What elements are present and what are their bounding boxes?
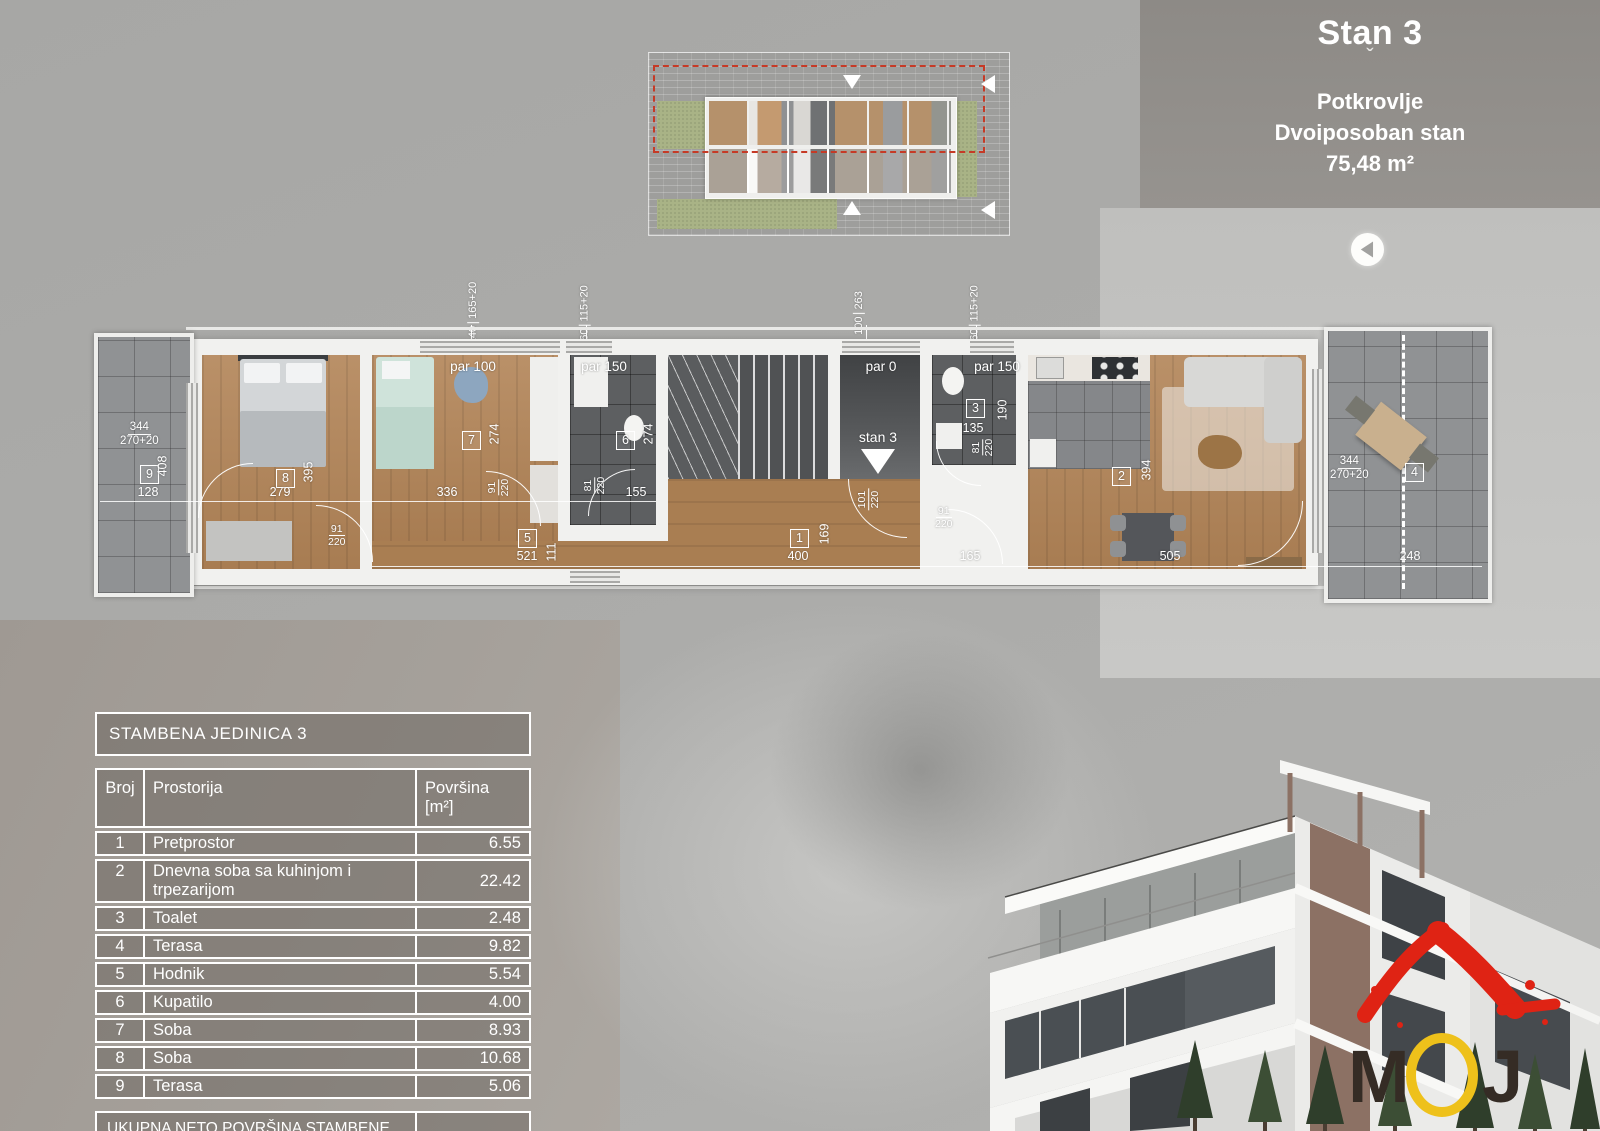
coffee-table: [1198, 435, 1242, 469]
bath-6-door-dim: 81220: [582, 477, 607, 495]
table-row: 4 Terasa 9.82: [95, 934, 531, 959]
roof-edge: [186, 327, 1326, 330]
entry-1-number: 1: [790, 529, 809, 548]
table-row: 1 Pretprostor 6.55: [95, 831, 531, 856]
entrance-arrow-icon: [861, 449, 895, 474]
blanket: [240, 411, 326, 467]
room-7-number: 7: [462, 431, 481, 450]
window-dim-label: 140165+20: [467, 282, 479, 344]
logo-word-dom: DOM: [1360, 1121, 1551, 1131]
chair: [1170, 515, 1186, 531]
sofa-chaise: [1264, 357, 1302, 443]
minimap-lower-unit: [709, 149, 951, 193]
terrace-9-height-dim: 408: [155, 456, 169, 477]
table-row: 3 Toalet 2.48: [95, 906, 531, 931]
terrace-9-width-dim: 128: [118, 485, 178, 499]
living-2-extra-dim: 165: [940, 549, 1000, 563]
pillow: [382, 361, 410, 379]
logo-roof-tail-stroke: [1502, 1004, 1555, 1010]
chair: [1110, 515, 1126, 531]
table-row: 5 Hodnik 5.54: [95, 962, 531, 987]
back-arrow-icon: [1359, 240, 1377, 259]
minimap-highlight-outline: [653, 65, 985, 153]
terrace-4-window-dim: 344270+20: [1330, 455, 1369, 482]
hall-5-height-dim: 111: [545, 542, 559, 561]
table-row: 8 Soba 10.68: [95, 1046, 531, 1071]
room-8-width-dim: 279: [240, 485, 320, 499]
terrace-9-sliding-door: [186, 383, 198, 553]
window: [420, 341, 560, 353]
dresser: [206, 521, 292, 561]
terrace-9-window-dim: 344270+20: [120, 421, 159, 448]
room-7-width-dim: 336: [412, 485, 482, 499]
table-header-row: Broj Prostorija Površina [m²]: [95, 768, 531, 828]
fridge: [1030, 439, 1056, 467]
col-header-broj: Broj: [97, 770, 143, 826]
terrace-4-number: 4: [1405, 463, 1424, 482]
stove: [1092, 357, 1138, 379]
room-7-door-dim: 91220: [486, 479, 511, 497]
page: Stan 3 ˇ Potkrovlje Dvoiposoban stan 75,…: [0, 0, 1600, 1131]
desk: [530, 357, 558, 461]
dimension-line: [372, 566, 1482, 567]
minimap-grass-bottom: [657, 199, 837, 229]
window: [970, 341, 1014, 353]
room-8-door-dim: 91220: [328, 523, 346, 548]
site-minimap: [648, 52, 1010, 236]
floor-label: Potkrovlje: [1140, 87, 1600, 118]
staircase-winders: [668, 355, 738, 479]
bath-6-height-dim: 274: [641, 424, 655, 445]
toilet-3-number: 3: [966, 399, 985, 418]
entry-1-door-dim: 101220: [856, 489, 881, 511]
toilet-bowl: [942, 367, 964, 395]
building-render: M J DOM: [930, 640, 1600, 1131]
terrace-4-sliding-door: [1312, 369, 1324, 553]
col-header-prostorija: Prostorija: [143, 770, 415, 826]
pergola-beam: [1280, 760, 1430, 815]
living-2-number: 2: [1112, 467, 1131, 486]
window-dim-label: 60115+20: [969, 285, 981, 340]
living-2-width-dim: 505: [1130, 549, 1210, 563]
apartment-type-label: Dvoiposoban stan: [1140, 118, 1600, 149]
living-2-height-dim: 394: [1139, 460, 1153, 481]
room-8-height-dim: 395: [301, 462, 315, 483]
entry-1-height-dim: 169: [817, 524, 831, 545]
building-illustration: M J DOM: [930, 640, 1600, 1131]
minimap-arrow-up-icon[interactable]: [843, 201, 861, 215]
entry-1-width-dim: 400: [758, 549, 838, 563]
bath-6-number: 6: [616, 431, 635, 450]
bath-6-extra-dim: 155: [614, 485, 658, 499]
area-table: STAMBENA JEDINICA 3 Broj Prostorija Povr…: [95, 712, 531, 1131]
room-7-parapet-label: par 100: [428, 359, 518, 374]
floor-plan: 140165+20 60115+20 100263 60115+20: [90, 323, 1490, 601]
entrance-label: stan 3: [840, 429, 916, 445]
toilet-3-height-dim: 190: [995, 400, 1009, 421]
back-button[interactable]: [1351, 233, 1384, 266]
logo-letter-j: J: [1482, 1035, 1523, 1118]
entrance-door-opening: [842, 341, 920, 353]
dimension-line: [100, 501, 656, 502]
window-dim-label: 60115+20: [579, 285, 591, 340]
kitchen-sink: [1036, 357, 1064, 379]
chair: [1110, 541, 1126, 557]
title-caret: ˇ: [1140, 53, 1600, 61]
col-header-povrsina: Površina [m²]: [415, 770, 529, 826]
table-row: 7 Soba 8.93: [95, 1018, 531, 1043]
staircase-steps: [738, 355, 828, 479]
pillow: [244, 363, 280, 383]
bath-6-parapet-label: par 150: [564, 359, 644, 374]
toilet-3-width-dim: 135: [950, 421, 996, 435]
pillow: [286, 363, 322, 383]
hall-5-number: 5: [518, 529, 537, 548]
terrace-4-width-dim: 248: [1380, 549, 1440, 563]
minimap-arrow-left-top-icon[interactable]: [981, 75, 995, 93]
total-value: 75.48 m²: [415, 1113, 529, 1131]
window: [570, 571, 620, 583]
landing-parapet-label: par 0: [846, 359, 916, 374]
living-2-door-dim: 91220: [935, 505, 953, 530]
table-row: 9 Terasa 5.06: [95, 1074, 531, 1099]
blanket: [376, 407, 434, 469]
table-footer-row: UKUPNA NETO POVRŠINA STAMBENE JEDINICE 3…: [95, 1111, 531, 1131]
table-row: 2 Dnevna soba sa kuhinjom i trpezarijom …: [95, 859, 531, 903]
toilet-3-parapet-label: par 150: [962, 359, 1032, 374]
roof-edge: [186, 586, 1326, 589]
apartment-header: Stan 3 ˇ Potkrovlje Dvoiposoban stan 75,…: [1140, 0, 1600, 179]
minimap-arrow-down-icon[interactable]: [843, 75, 861, 89]
table-row: 6 Kupatilo 4.00: [95, 990, 531, 1015]
table-title: STAMBENA JEDINICA 3: [95, 712, 531, 756]
logo-letter-m: M: [1348, 1035, 1410, 1118]
apartment-area-label: 75,48 m²: [1140, 149, 1600, 180]
total-label: UKUPNA NETO POVRŠINA STAMBENE JEDINICE 3: [97, 1113, 415, 1131]
minimap-arrow-left-bottom-icon[interactable]: [981, 201, 995, 219]
window: [566, 341, 612, 353]
room-7-height-dim: 274: [487, 424, 501, 445]
toilet-3-door-dim: 81220: [970, 439, 995, 457]
